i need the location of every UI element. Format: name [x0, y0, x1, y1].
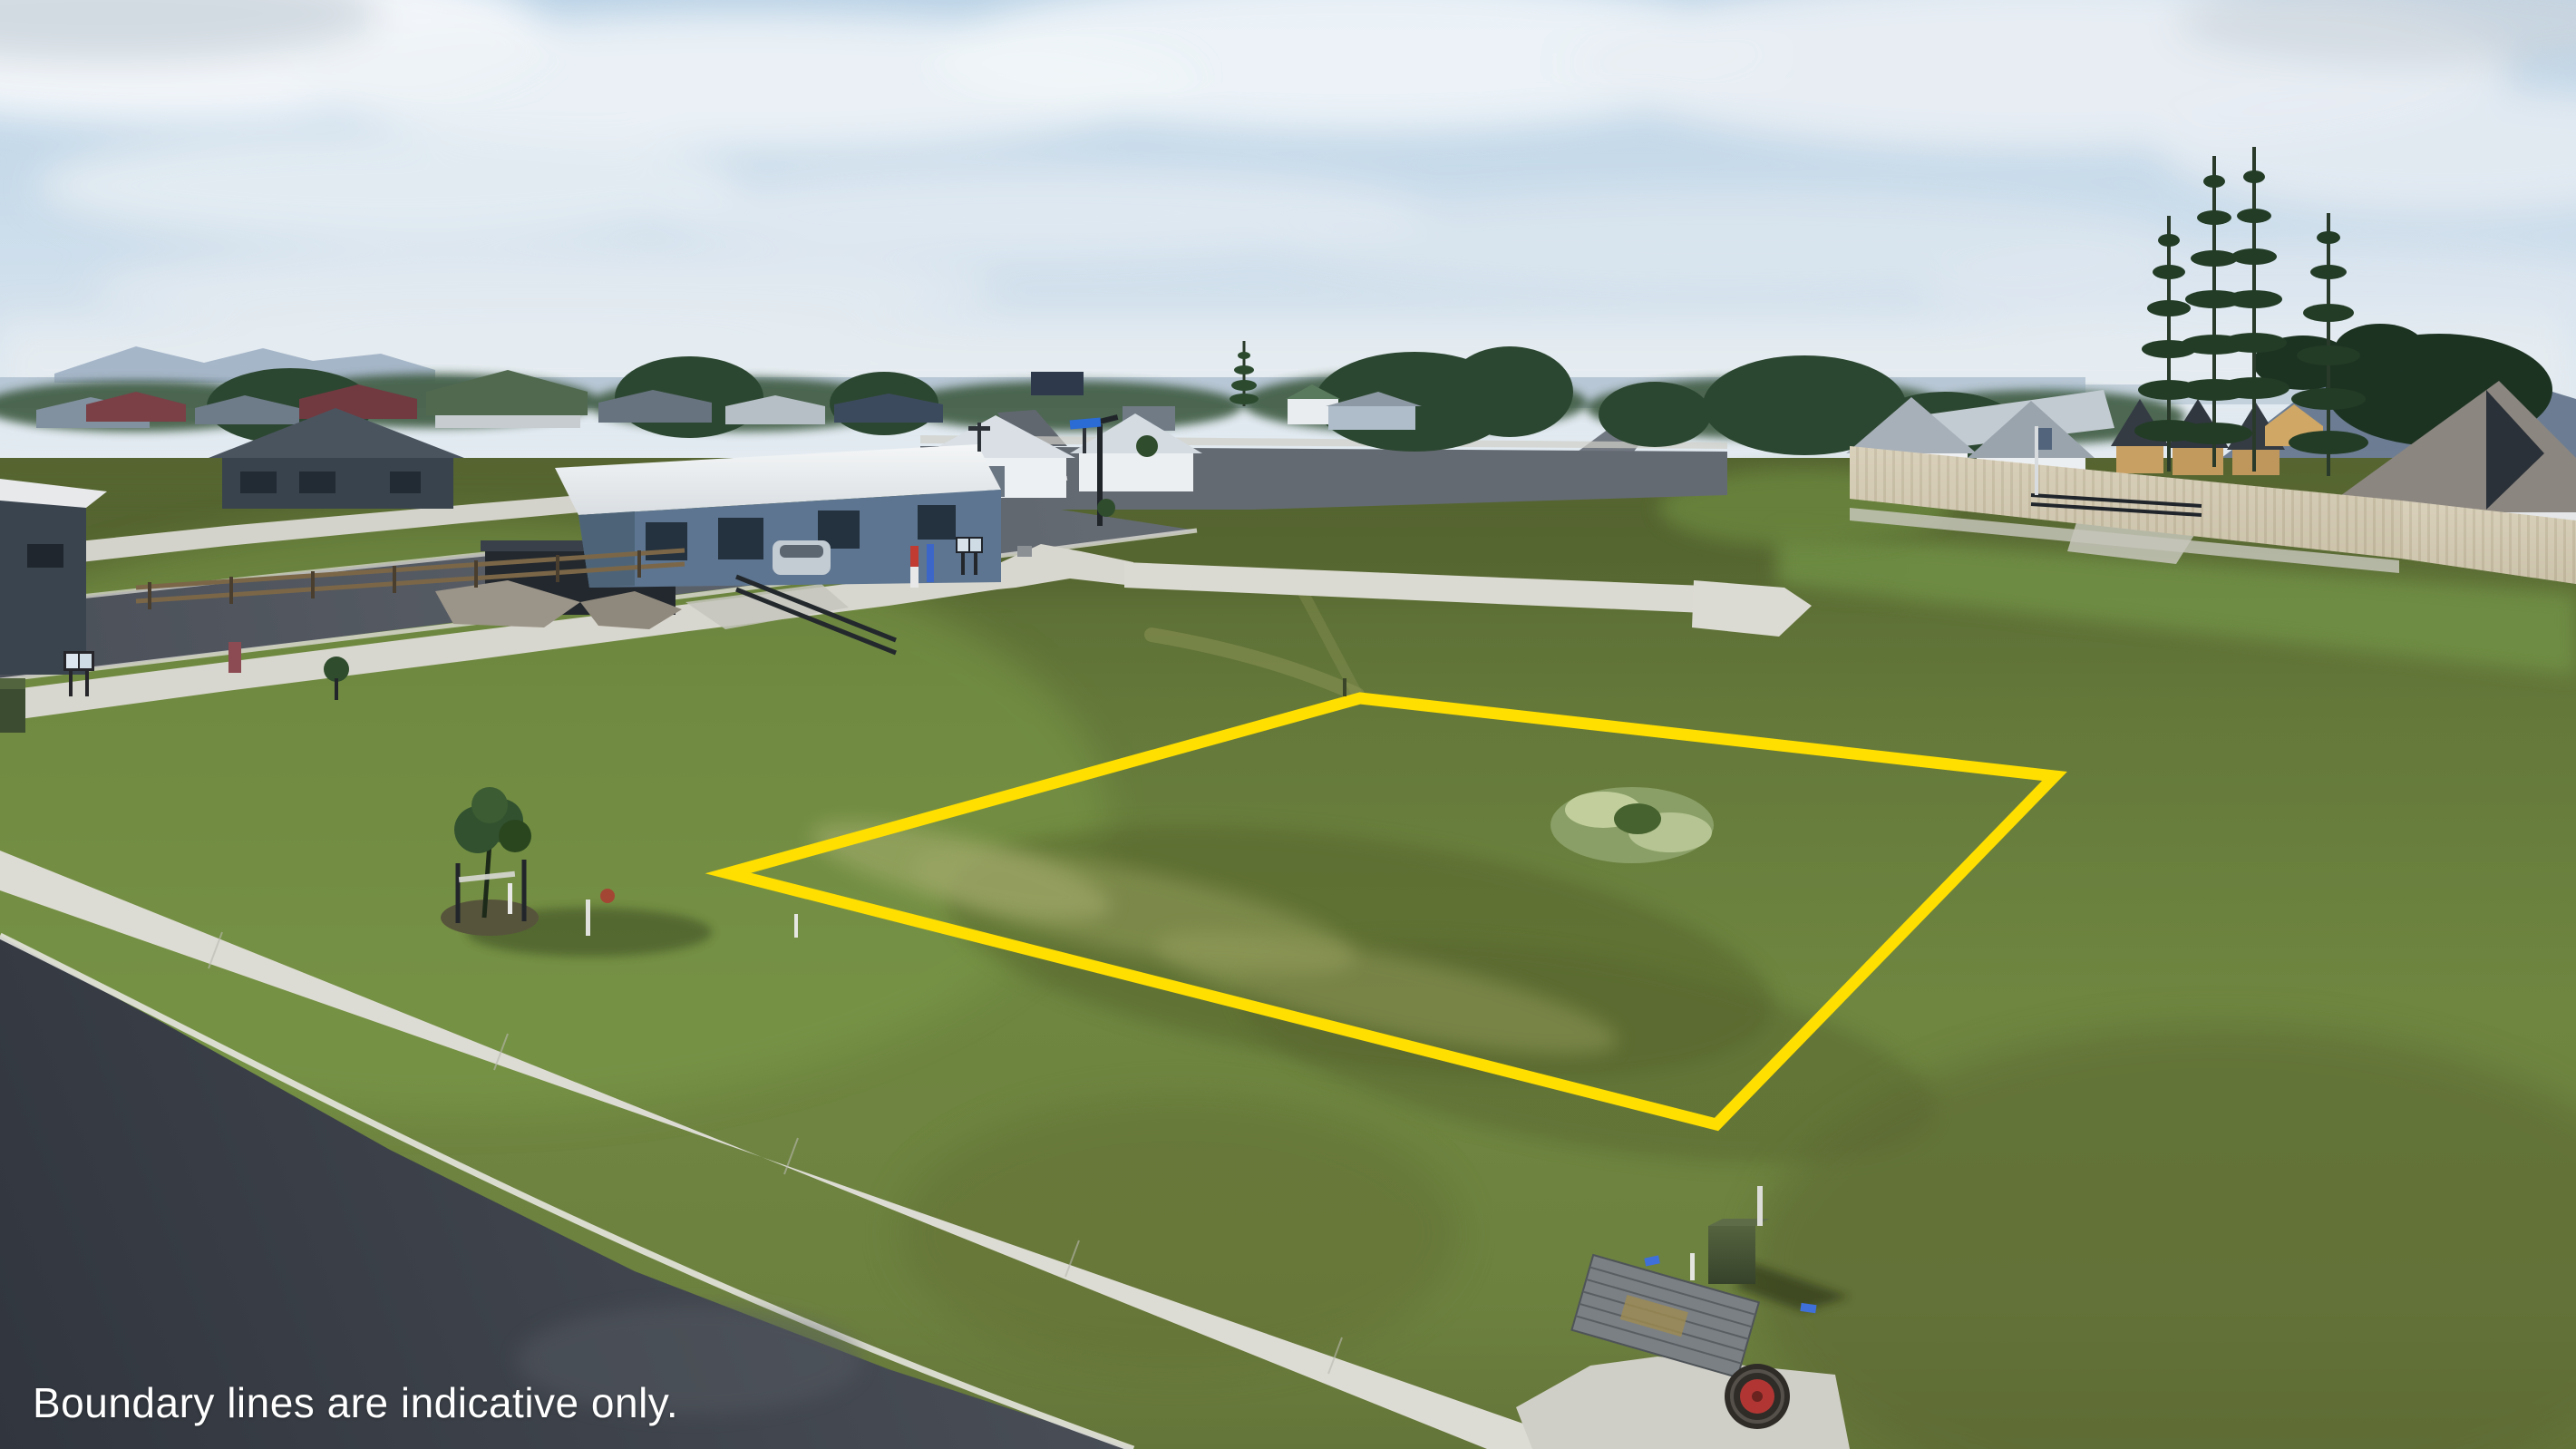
- house-window: [240, 472, 277, 493]
- pine-branch: [2231, 248, 2277, 265]
- pine-branch: [2289, 431, 2368, 454]
- manhole-center: [1752, 1391, 1763, 1402]
- double-sign-panel: [66, 654, 78, 668]
- house-door: [718, 518, 763, 559]
- tree: [1599, 382, 1711, 447]
- marker-post-white: [910, 567, 919, 588]
- pine-branch: [2243, 170, 2265, 183]
- utility-cabinet: [1708, 1226, 1755, 1284]
- white-post: [1757, 1186, 1763, 1226]
- sign-crossbar: [968, 426, 990, 431]
- distant-house-wall: [435, 415, 580, 428]
- pine-branch: [2203, 175, 2225, 188]
- aerial-photo: Boundary lines are indicative only.: [0, 0, 2576, 1449]
- info-sign-panel: [970, 539, 981, 551]
- marker-post-maroon: [228, 642, 241, 673]
- sapling-canopy: [471, 787, 508, 823]
- pine-branch: [1230, 394, 1259, 404]
- pine-branch: [2226, 290, 2282, 308]
- pine-branch: [2221, 333, 2287, 353]
- pine-branch: [1234, 365, 1254, 374]
- house-window: [390, 472, 421, 493]
- survey-mark-red: [600, 889, 615, 903]
- pine-branch: [2191, 250, 2238, 267]
- house-window: [299, 472, 335, 493]
- pine-branch: [2297, 345, 2360, 365]
- olive-patch: [898, 1097, 1460, 1369]
- pine-branch: [2310, 265, 2347, 279]
- survey-peg: [586, 900, 590, 936]
- street-sapling: [1097, 499, 1115, 517]
- pine-branch: [1238, 352, 1250, 359]
- tree: [1446, 346, 1573, 437]
- pine-branch: [2197, 210, 2231, 225]
- pine-branch: [2153, 265, 2185, 279]
- cloud: [36, 131, 744, 240]
- utility-pillar: [1017, 546, 1032, 557]
- pine-branch: [2237, 209, 2271, 223]
- street-sapling: [1136, 435, 1158, 457]
- info-sign-panel: [957, 539, 968, 551]
- cloud: [91, 247, 997, 334]
- pine-branch: [1231, 380, 1257, 391]
- shed-far-left: [0, 497, 86, 675]
- tussock-bush: [1550, 787, 1714, 863]
- boundary-disclaimer-text: Boundary lines are indicative only.: [33, 1378, 678, 1427]
- survey-peg: [508, 883, 512, 914]
- pine-branch: [2317, 231, 2340, 244]
- car-windows: [780, 545, 823, 558]
- pine-branch: [2176, 423, 2252, 444]
- marker-post-red: [910, 546, 919, 567]
- pine-branch: [2291, 388, 2366, 410]
- pine-branch: [2219, 377, 2289, 399]
- white-cottage-wall: [1079, 453, 1193, 491]
- survey-peg: [1690, 1253, 1695, 1280]
- pine-branch: [2303, 304, 2354, 322]
- house-window: [918, 505, 956, 540]
- sapling-canopy: [499, 820, 531, 852]
- distant-house: [1031, 372, 1084, 395]
- survey-peg: [794, 914, 798, 938]
- utility-box-top: [0, 678, 25, 689]
- street-sapling: [324, 656, 349, 682]
- pine-branch: [2158, 234, 2180, 247]
- pine-branch: [2147, 300, 2191, 316]
- double-sign-panel: [80, 654, 92, 668]
- tan-cottage-wall: [2116, 446, 2163, 473]
- scene-canvas: [0, 0, 2576, 1449]
- marker-post-blue: [927, 544, 934, 582]
- shed-window: [27, 544, 63, 568]
- tussock: [1614, 803, 1661, 834]
- flag: [2038, 428, 2052, 450]
- distant-house-wall: [1328, 406, 1415, 430]
